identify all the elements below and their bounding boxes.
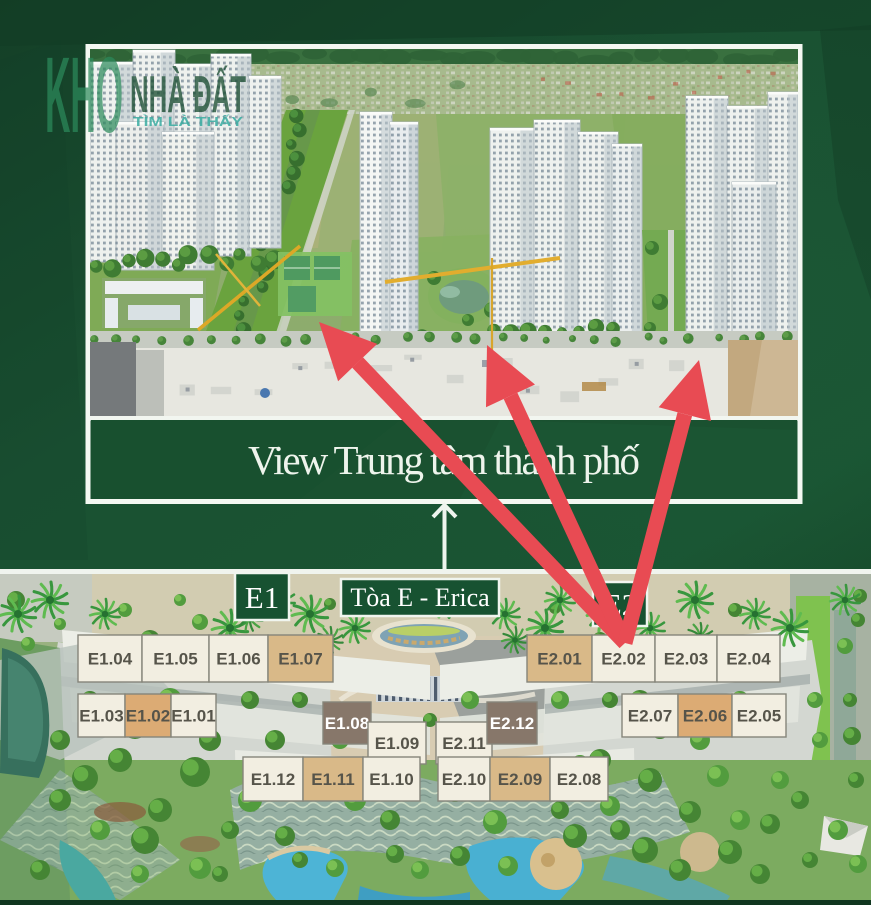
svg-text:TÌM LÀ THẤY: TÌM LÀ THẤY [133,114,243,129]
svg-text:E1.09: E1.09 [375,734,419,753]
svg-text:E2.07: E2.07 [628,707,672,726]
svg-text:E1.05: E1.05 [153,650,197,669]
svg-text:Tòa E - Erica: Tòa E - Erica [350,583,490,612]
svg-text:E2.08: E2.08 [557,770,601,789]
svg-text:E1.08: E1.08 [325,714,369,733]
svg-text:E2.12: E2.12 [490,714,534,733]
svg-text:E2.05: E2.05 [737,707,781,726]
svg-text:E2.09: E2.09 [498,770,542,789]
svg-text:E1.12: E1.12 [251,770,295,789]
svg-text:E2.11: E2.11 [442,734,486,753]
svg-text:E1.10: E1.10 [369,770,413,789]
svg-text:E1.02: E1.02 [126,707,170,726]
svg-text:E1.03: E1.03 [79,707,123,726]
svg-text:E1.07: E1.07 [278,650,322,669]
svg-text:KHO: KHO [45,34,123,155]
svg-text:E2.10: E2.10 [442,770,486,789]
svg-text:E1.11: E1.11 [311,770,355,789]
svg-text:E1.01: E1.01 [171,707,215,726]
svg-text:E2.01: E2.01 [537,650,581,669]
svg-text:E2.02: E2.02 [601,650,645,669]
svg-text:E1.04: E1.04 [88,650,133,669]
svg-text:E2.04: E2.04 [726,650,771,669]
svg-text:E1: E1 [245,580,279,615]
svg-text:E2.03: E2.03 [664,650,708,669]
svg-text:E2.06: E2.06 [683,707,727,726]
svg-text:E1.06: E1.06 [216,650,260,669]
